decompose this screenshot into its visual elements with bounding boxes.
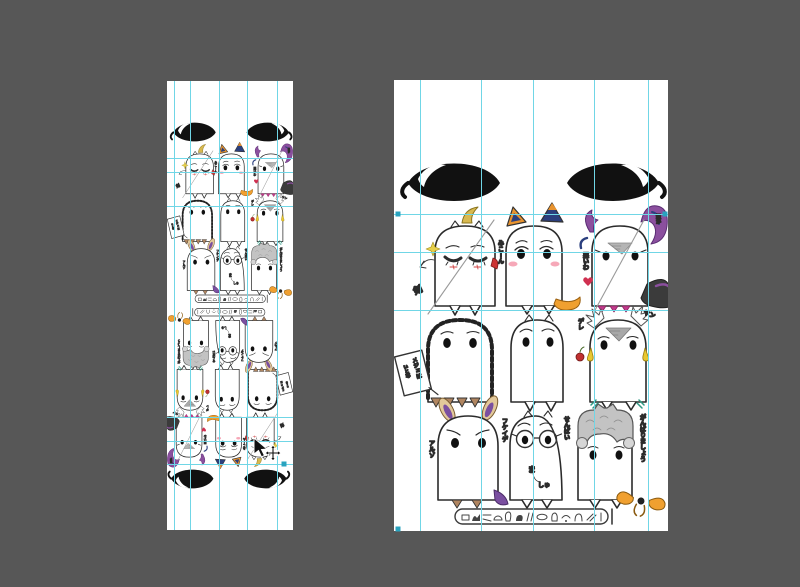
arrow-pointer-icon	[254, 438, 267, 457]
sheet-instance-right[interactable]	[394, 80, 668, 531]
move-cursor	[253, 438, 283, 464]
move-cross-icon	[265, 445, 281, 461]
artboard-right[interactable]	[394, 80, 668, 531]
sheet-instance-left-top[interactable]	[167, 81, 293, 306]
sheet-instance-left-bottom-rotated[interactable]	[167, 305, 293, 530]
